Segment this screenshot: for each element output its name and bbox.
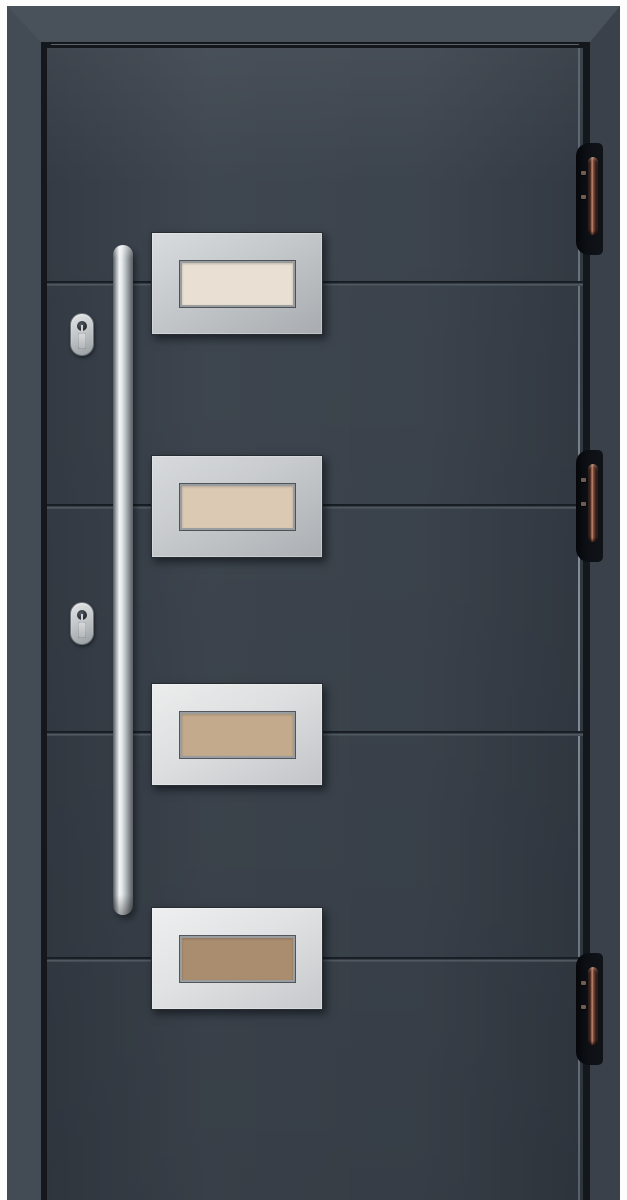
cylinder-lock-lower — [70, 602, 94, 645]
hinge-pin — [588, 157, 598, 235]
hinge-knob — [581, 1005, 586, 1009]
keyhole-slit — [81, 325, 83, 331]
glazing-panel-2 — [151, 455, 323, 558]
hinge-knob — [581, 478, 586, 482]
cylinder-lock-upper — [70, 313, 94, 356]
leaf-top-edge-highlight — [51, 44, 579, 45]
frame-rebate-gap — [41, 42, 590, 1200]
door-frame — [7, 6, 620, 1200]
glass-pane-1 — [180, 261, 295, 307]
glass-pane-3 — [180, 712, 295, 758]
hinge-pin — [588, 464, 598, 542]
glass-pane-4 — [180, 936, 295, 982]
hinge-top — [576, 143, 603, 255]
hinge-knob — [581, 502, 586, 506]
hinge-knob — [581, 981, 586, 985]
pull-handle-bar — [113, 245, 133, 915]
glass-pane-2 — [180, 484, 295, 530]
keyhole-slit — [81, 614, 83, 620]
hinge-knob — [581, 171, 586, 175]
door-photo — [0, 0, 627, 1200]
glazing-panel-3 — [151, 683, 323, 786]
hinge-middle — [576, 450, 603, 562]
glazing-panel-4 — [151, 907, 323, 1010]
door-leaf — [47, 48, 583, 1200]
keyhole-slot — [78, 622, 86, 638]
hinge-bottom — [576, 953, 603, 1065]
hinge-pin — [588, 967, 598, 1045]
keyhole-slot — [78, 333, 86, 349]
hinge-knob — [581, 195, 586, 199]
glazing-panel-1 — [151, 232, 323, 335]
